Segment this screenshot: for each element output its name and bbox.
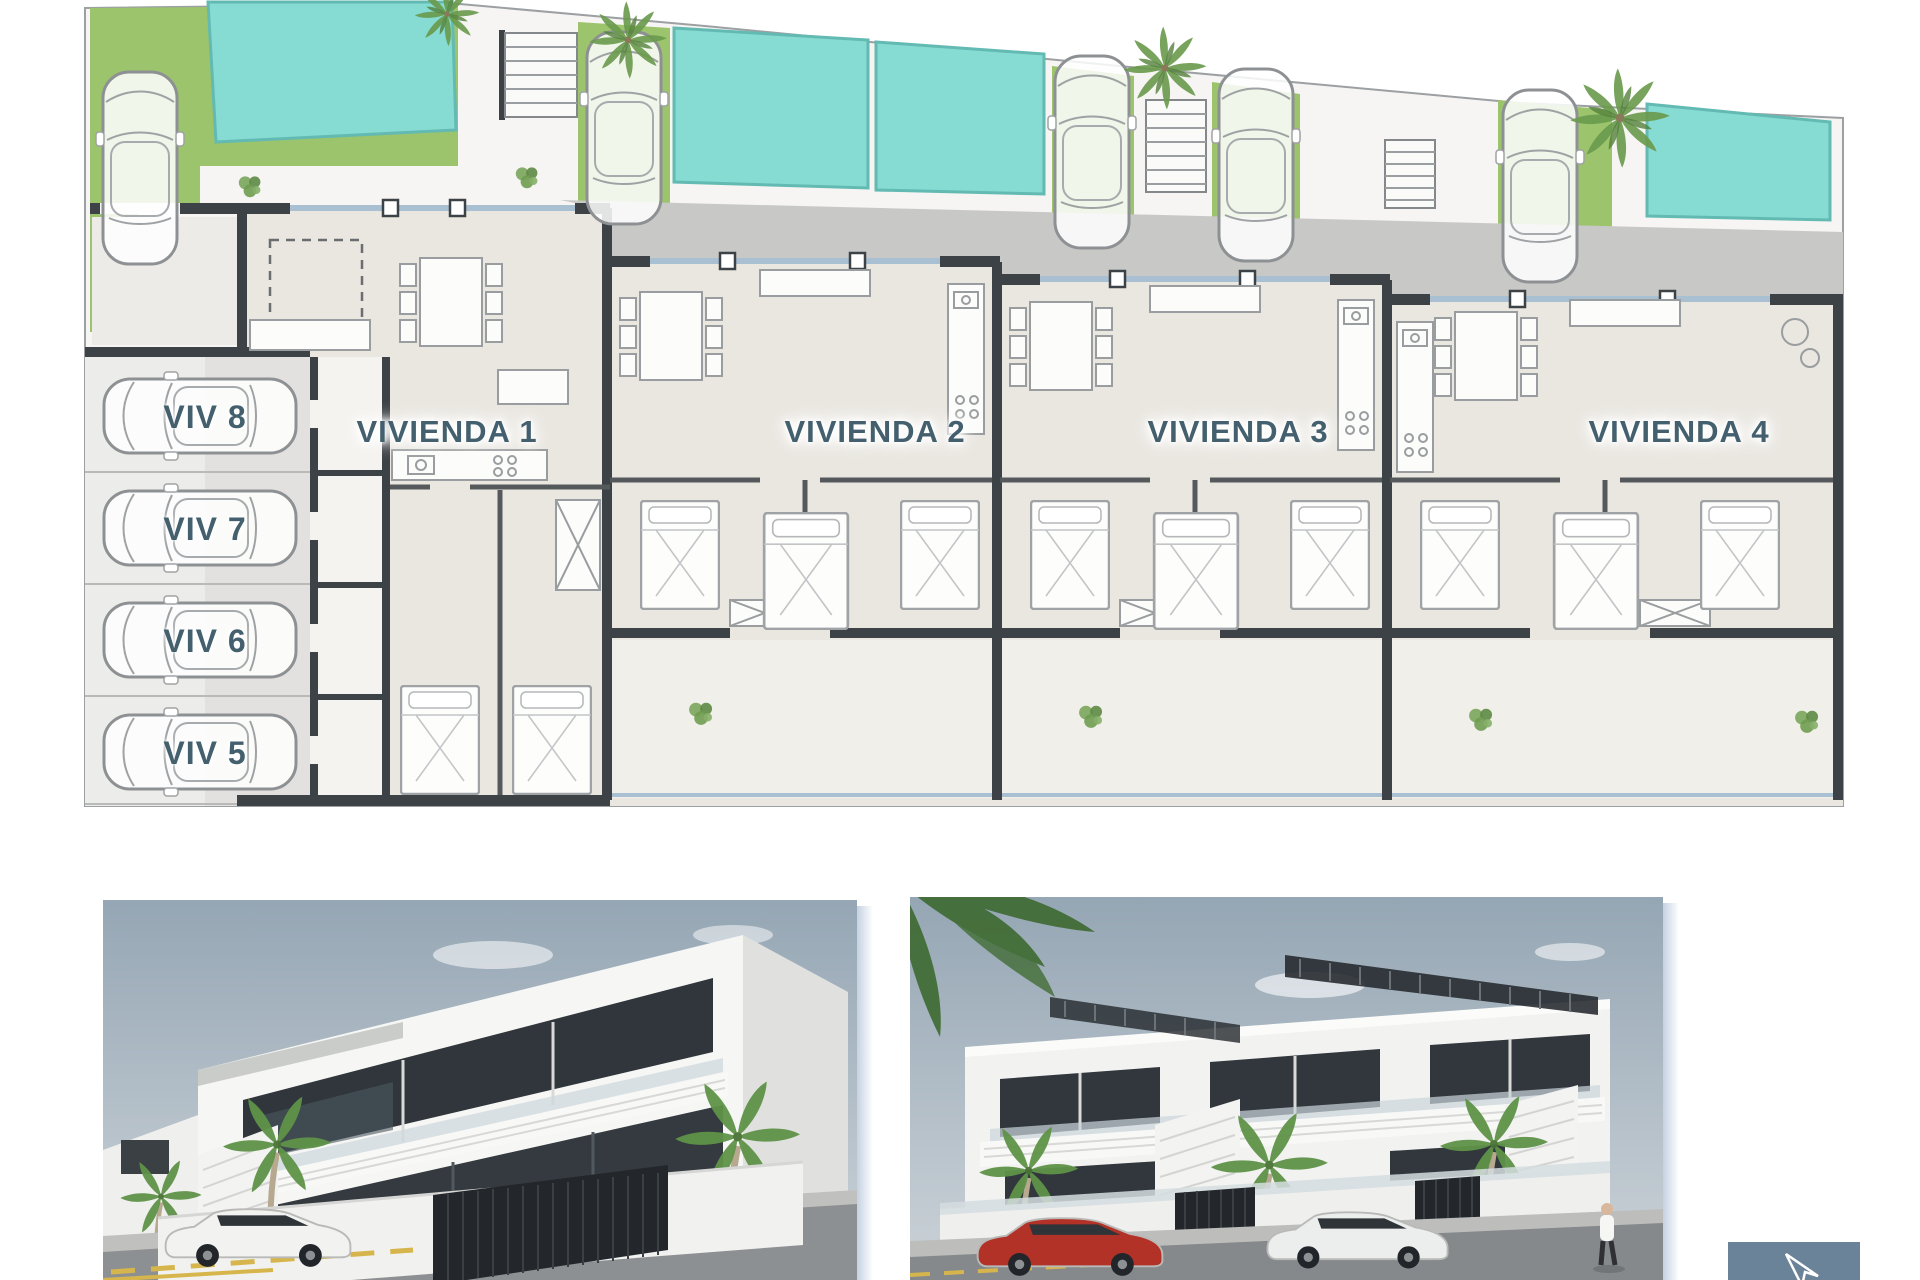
swimming-pool (674, 28, 868, 188)
render-drop-shadow (1663, 903, 1679, 1280)
parking-space-label: VIV 8 (163, 399, 246, 435)
parking-space-label: VIV 7 (163, 511, 246, 547)
exterior-render-right (910, 897, 1663, 1280)
car-top-view-icon (580, 32, 668, 224)
unit-label: VIVIENDA 4 (1588, 414, 1769, 449)
terraces (612, 640, 1833, 798)
car-top-view-icon (1212, 69, 1300, 261)
swimming-pool (1647, 104, 1830, 220)
floor-plan-drawing: VIVIENDA 1 VIVIENDA 2 VIVIENDA 3 VIVIEND… (0, 0, 1920, 830)
render-left-scene (103, 900, 857, 1280)
cloud (433, 941, 553, 969)
swimming-pool (876, 42, 1044, 194)
parking-space-label: VIV 6 (163, 623, 246, 659)
render-drop-shadow (857, 906, 873, 1280)
unit-label: VIVIENDA 2 (784, 414, 965, 449)
car-top-view-icon (1048, 56, 1136, 248)
swimming-pool (208, 2, 456, 142)
car-top-view-icon (96, 72, 184, 264)
cloud (1535, 943, 1605, 961)
nav-button-partial[interactable] (1728, 1242, 1860, 1280)
unit-label: VIVIENDA 3 (1147, 414, 1328, 449)
unit-label: VIVIENDA 1 (356, 414, 537, 449)
exterior-render-left (103, 900, 857, 1280)
brochure-page: VIVIENDA 1 VIVIENDA 2 VIVIENDA 3 VIVIEND… (0, 0, 1920, 1280)
render-right-scene (910, 897, 1663, 1280)
parking-space-label: VIV 5 (163, 735, 246, 771)
car-top-view-icon (1496, 90, 1584, 282)
